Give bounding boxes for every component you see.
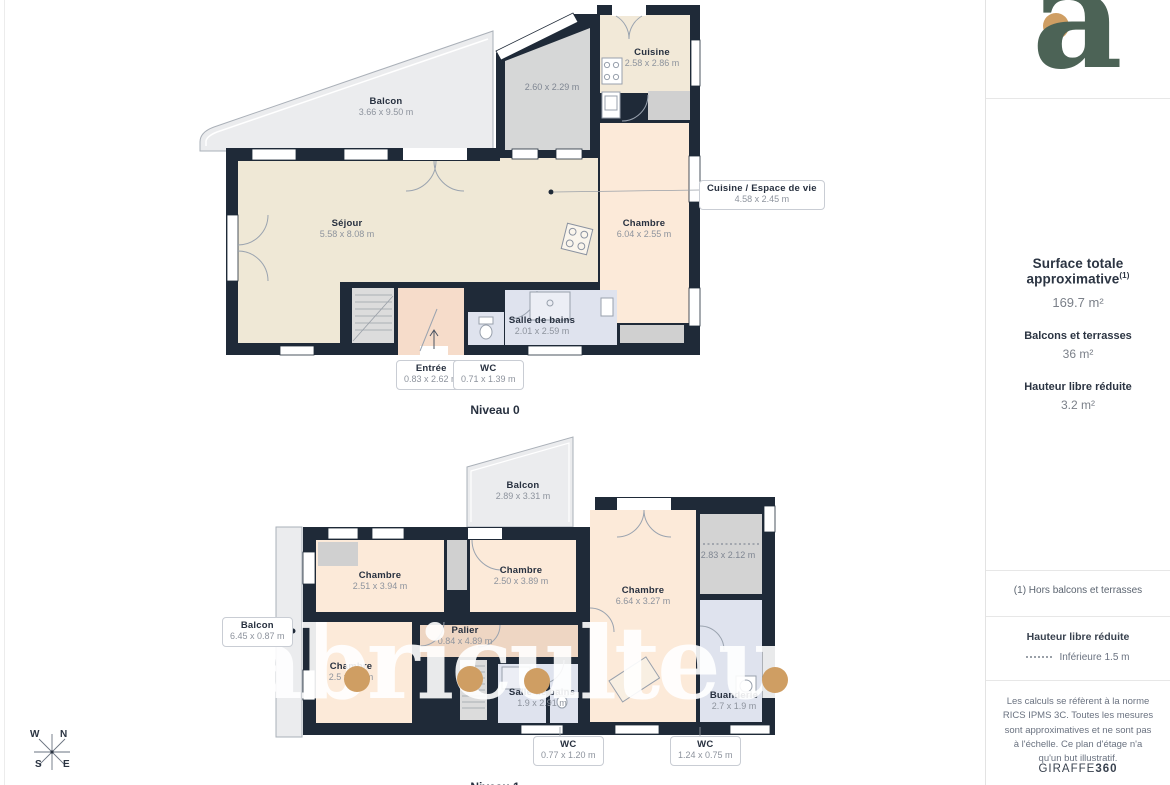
sidebar-divider [986, 616, 1170, 617]
hauteur-reduite-label: Hauteur libre réduite [986, 381, 1170, 393]
balcons-terrasses-value: 36 m² [986, 347, 1170, 361]
room-label-sejour: Séjour 5.58 x 8.08 m [320, 218, 375, 241]
watermark-dot [457, 666, 483, 692]
room-label-palier: Palier 0.84 x 4.89 m [438, 625, 493, 648]
info-sidebar: a Surface totale approximative(1) 169.7 … [985, 0, 1170, 785]
compass-north-label: N [60, 729, 67, 740]
callout-wc-n0: WC 0.71 x 1.39 m [453, 360, 524, 390]
callout-wc1-n1: WC 0.77 x 1.20 m [533, 736, 604, 766]
callout-balcon-gauche: Balcon 6.45 x 0.87 m [222, 617, 293, 647]
level-title-niveau-0: Niveau 0 [470, 403, 519, 417]
legal-disclaimer: Les calculs se réfèrent à la norme RICS … [986, 695, 1170, 766]
floor-plan-page: Balcon 3.66 x 9.50 m 2.60 x 2.29 m Cuisi… [0, 0, 1170, 785]
room-label-balcon-n1: Balcon 2.89 x 3.31 m [496, 480, 551, 503]
room-label-chambre-a: Chambre 2.51 x 3.94 m [353, 570, 408, 593]
footnote-text: (1) Hors balcons et terrasses [986, 585, 1170, 596]
room-label-chambre-b: Chambre 2.50 x 3.89 m [494, 565, 549, 588]
surface-value: 169.7 m² [986, 295, 1170, 310]
watermark-dot [524, 668, 550, 694]
giraffe360-brand: GIRAFFE360 [986, 763, 1170, 775]
watermark-dot [344, 666, 370, 692]
sidebar-divider [986, 680, 1170, 681]
sidebar-divider [986, 570, 1170, 571]
room-label-gray-n1: 2.83 x 2.12 m [701, 550, 756, 562]
surface-footnote-marker: (1) [1119, 271, 1129, 280]
compass-south-label: S [35, 759, 42, 770]
dotted-line-icon [1026, 656, 1052, 658]
legend-title: Hauteur libre réduite [986, 631, 1170, 643]
room-label-balcon-n0: Balcon 3.66 x 9.50 m [359, 96, 414, 119]
surface-summary: Surface totale approximative(1) 169.7 m²… [986, 256, 1170, 412]
brand-name-bold: 360 [1095, 763, 1117, 775]
balcons-terrasses-label: Balcons et terrasses [986, 330, 1170, 342]
room-label-chambre-c: Chambre 6.64 x 3.27 m [616, 585, 671, 608]
sidebar-divider [986, 98, 1170, 99]
room-label-chambre-n0: Chambre 6.04 x 2.55 m [617, 218, 672, 241]
legend-row: Inférieure 1.5 m [986, 652, 1170, 663]
room-label-cuisine: Cuisine 2.58 x 2.86 m [625, 47, 680, 70]
room-label-sdb-n0: Salle de bains 2.01 x 2.59 m [509, 315, 575, 338]
surface-title: Surface totale approximative(1) [986, 256, 1170, 287]
watermark-dot [762, 667, 788, 693]
brand-logo: a [986, 0, 1170, 98]
hauteur-reduite-value: 3.2 m² [986, 398, 1170, 412]
compass-west-label: W [30, 729, 39, 740]
legend-value: Inférieure 1.5 m [1059, 652, 1129, 663]
floor-plan-niveau-1 [0, 430, 985, 785]
compass-east-label: E [63, 759, 70, 770]
room-label-gray-n0: 2.60 x 2.29 m [525, 82, 580, 94]
callout-wc2-n1: WC 1.24 x 0.75 m [670, 736, 741, 766]
legend-block: Hauteur libre réduite Inférieure 1.5 m [986, 631, 1170, 663]
logo-letter-a-icon: a [1032, 0, 1123, 98]
brand-name: GIRAFFE [1038, 763, 1095, 775]
room-label-buanderie: Buanderie 2.7 x 1.9 m [710, 690, 758, 713]
level-title-niveau-1: Niveau 1 [470, 780, 519, 785]
callout-cuisine-espace-de-vie: Cuisine / Espace de vie 4.58 x 2.45 m [699, 180, 825, 210]
